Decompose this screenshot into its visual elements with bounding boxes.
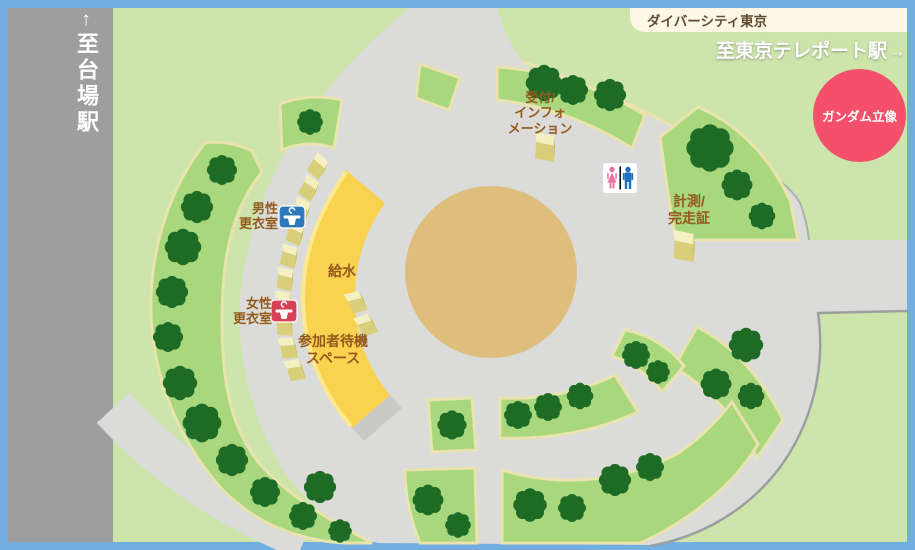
to-daiba-station-label: 至台場駅 (70, 32, 102, 136)
participant-waiting-space-label: 参加者待機 スペース (283, 333, 383, 366)
timing-finisher-certificate-label: 計測/ 完走証 (660, 193, 718, 226)
to-tokyo-teleport-station-label: 至東京テレポート駅→ (690, 36, 906, 63)
water-station-label: 給水 (328, 263, 374, 280)
reception-information-label: 受付/ インフォ メーション (498, 90, 582, 136)
gundam-statue-label: ガンダム立像 (822, 106, 897, 125)
central-plaza-circle (405, 186, 577, 358)
restroom-icon (603, 163, 637, 193)
venue-map: ↑ 至台場駅 ダイバーシティ東京 至東京テレポート駅→ ガンダム立像 受付/ イ… (0, 0, 915, 550)
divercity-tokyo-banner: ダイバーシティ東京 (630, 8, 907, 32)
gundam-statue-marker: ガンダム立像 (813, 69, 906, 162)
map-graphic (0, 0, 915, 550)
up-arrow-icon: ↑ (81, 10, 91, 30)
mens-changing-room-label: 男性 更衣室 (228, 201, 278, 232)
to-daiba-station-sign: ↑ 至台場駅 (66, 10, 106, 180)
mens-changing-hanger-icon (279, 206, 305, 228)
divercity-tokyo-label: ダイバーシティ東京 (647, 10, 767, 30)
womens-changing-room-label: 女性 更衣室 (222, 296, 272, 327)
womens-changing-hanger-icon (271, 300, 297, 322)
